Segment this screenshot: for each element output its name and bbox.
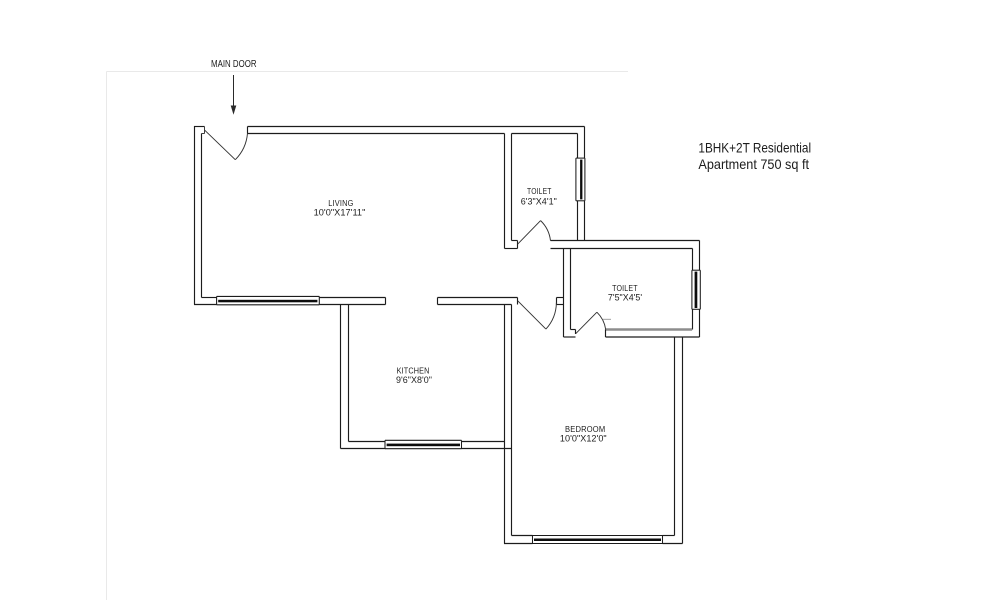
svg-text:7'5"X4'5': 7'5"X4'5' [608,293,642,303]
svg-text:Apartment 750 sq ft: Apartment 750 sq ft [698,156,809,172]
svg-text:1BHK+2T Residential: 1BHK+2T Residential [698,140,811,156]
svg-text:TOILET: TOILET [612,283,638,293]
svg-text:TOILET: TOILET [527,186,552,196]
svg-text:10'0"X12'0": 10'0"X12'0" [560,433,607,443]
svg-text:9'6"X8'0": 9'6"X8'0" [396,375,432,385]
svg-text:10'0"X17'11": 10'0"X17'11" [314,207,366,217]
svg-text:MAIN DOOR: MAIN DOOR [211,59,257,70]
svg-text:6'3"X4'1": 6'3"X4'1" [521,196,557,206]
